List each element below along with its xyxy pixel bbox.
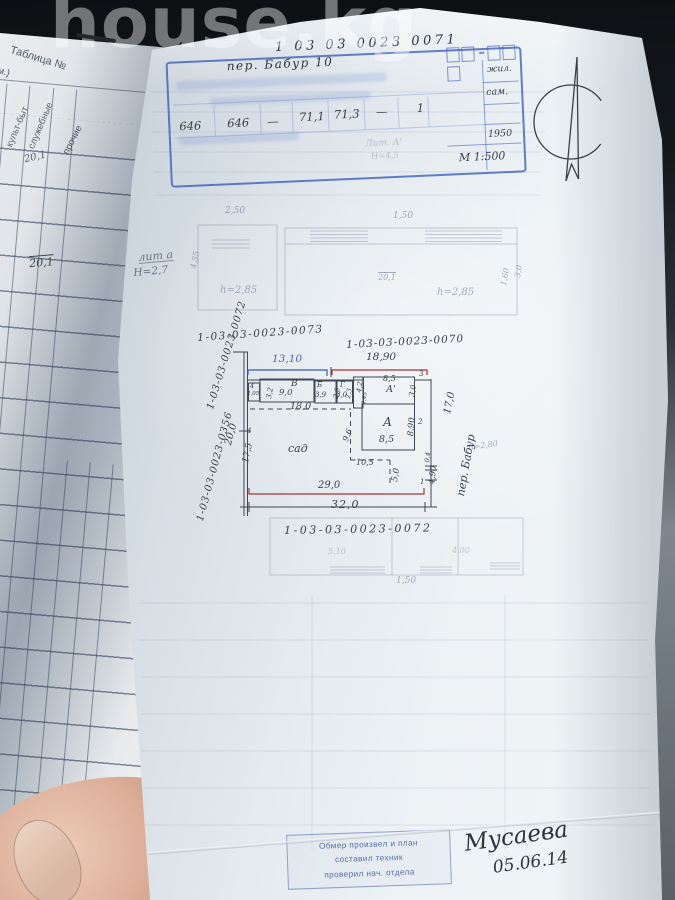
point-marker-3: 3	[419, 371, 423, 378]
stamp-row-sam: сам.	[486, 87, 508, 97]
room-c3-label: Г	[340, 382, 345, 389]
garden-dashed-boundary	[250, 409, 390, 484]
shed-dim: 2,05	[247, 392, 259, 398]
garden-label: сад	[288, 443, 308, 454]
dim-18-0: 18,0	[290, 402, 311, 412]
ghost-height: h=2,85	[220, 286, 257, 296]
shed-number: 4	[250, 383, 254, 390]
dim-4-90: 4,90	[428, 465, 439, 485]
stamp-value: 1	[417, 103, 425, 115]
stamp-value: 71,3	[334, 108, 360, 121]
ghost-dim: 1,50	[393, 212, 413, 221]
ghost-dim: 2,50	[225, 207, 245, 216]
ghost-dim: 1,50	[396, 577, 416, 586]
stamp-value: —	[376, 106, 388, 118]
room-a1-depth: 3,0	[408, 384, 417, 397]
dim-18-90: 18,90	[366, 352, 396, 363]
watermark-text: house.kg	[50, 0, 418, 64]
dim-32-0: 32,0	[331, 499, 360, 510]
dim-29-0: 29,0	[318, 481, 340, 491]
room-a1-label: А'	[386, 385, 396, 395]
photo-scene: Таблица № м.) культ-быт. служебные прочи…	[0, 0, 675, 900]
point-marker-1: 1	[420, 479, 424, 486]
room-a1-width: 8,5	[383, 375, 396, 383]
stamp-value: 646	[227, 117, 249, 129]
room-c2-width: 3,9	[315, 392, 326, 399]
dim-10-5: 10,5	[356, 459, 374, 467]
stamp-row-zhil: жил.	[487, 65, 512, 75]
room-a-label: А	[383, 416, 392, 428]
stamp-value: 646	[179, 120, 201, 132]
room-b-width: 9,0	[279, 389, 293, 398]
north-arrow	[534, 57, 608, 181]
ghost-litera: Лит. А'	[365, 139, 402, 150]
room-a-width: 8,5	[379, 435, 394, 445]
ghost-height: Н=4,5	[371, 152, 399, 162]
point-marker-2: 2	[418, 419, 422, 426]
ghost-num: 4,00	[452, 547, 470, 555]
room-a-depth: 8,90	[407, 417, 417, 437]
neighbor-code-bottom: 1-03-03-0023-0072	[284, 522, 433, 536]
dim-5-0: 5,0	[391, 468, 402, 483]
point-marker-4: 4	[247, 428, 251, 435]
room-c2-label: Б	[317, 382, 322, 389]
stamp-value: 71,1	[299, 111, 325, 124]
ghost-fraction: 20,1	[378, 272, 396, 282]
dim-0-4: 0,4	[424, 452, 432, 463]
stamp-scale: М 1:500	[459, 150, 506, 163]
blue-dimension-bracket	[248, 370, 327, 376]
ghost-num: 5,10	[328, 548, 346, 556]
stamp-value: —	[267, 116, 279, 128]
stamp-year: 1950	[488, 129, 513, 140]
dim-13-10: 13,10	[272, 354, 302, 365]
ghost-height: h=2,85	[437, 288, 474, 298]
room-c3-depth: 2,3	[345, 388, 353, 399]
